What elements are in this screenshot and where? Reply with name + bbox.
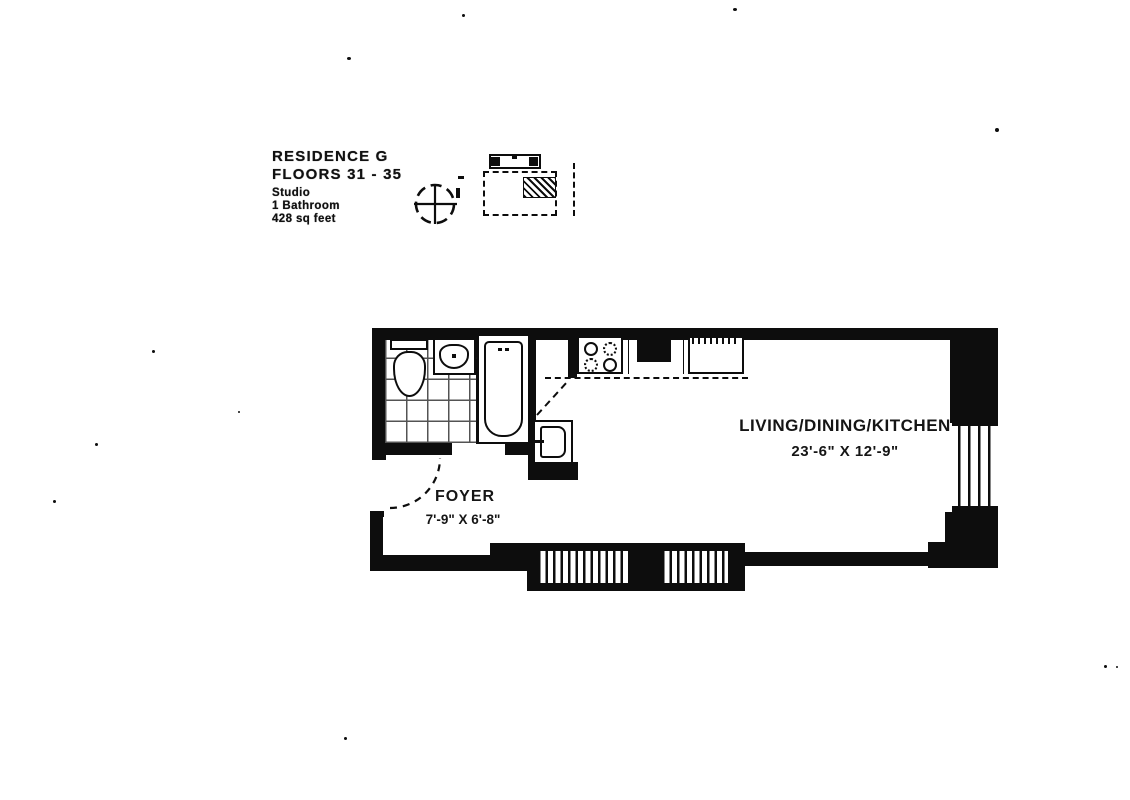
bathroom-count: 1 Bathroom — [272, 200, 340, 212]
key-plan-bar-endcap — [491, 157, 500, 166]
counter-edge-dashed — [545, 377, 748, 379]
refrigerator-coil-hatch — [692, 338, 740, 344]
foyer-label: FOYER — [400, 488, 530, 506]
scan-speck — [733, 8, 737, 11]
window-right — [958, 426, 992, 508]
scan-speck — [1104, 665, 1107, 668]
column-top-right — [950, 328, 998, 423]
tub-faucet-dot — [505, 348, 509, 351]
floorplan-sheet: RESIDENCE G FLOORS 31 - 35 Studio 1 Bath… — [0, 0, 1130, 800]
wall-left-lower — [370, 516, 383, 571]
kitchen-sink-niche — [637, 336, 671, 362]
scan-speck — [344, 737, 347, 740]
tick-mark — [456, 188, 460, 198]
scan-speck — [53, 500, 56, 503]
window-convector-right — [662, 551, 728, 583]
sink-drain-dot — [452, 354, 456, 358]
scan-speck — [995, 128, 999, 132]
wall-closet-step — [528, 462, 578, 480]
toilet-tank — [390, 339, 428, 350]
floors-range: FLOORS 31 - 35 — [272, 166, 402, 183]
scan-speck — [347, 57, 351, 60]
door-jamb-bottom — [370, 511, 384, 517]
scan-speck — [462, 14, 465, 17]
scan-speck — [1116, 666, 1118, 668]
scan-speck — [152, 350, 155, 353]
residence-name: RESIDENCE G — [272, 148, 389, 165]
wall-kitchen-left — [568, 328, 577, 378]
counter-divider — [683, 336, 684, 374]
key-plan-bar-notch — [512, 154, 517, 159]
living-room-label: LIVING/DINING/KITCHEN — [720, 416, 970, 436]
scan-speck — [238, 411, 240, 413]
kitchen-sink-faucet — [535, 440, 544, 443]
living-room-dimensions: 23'-6" X 12'-9" — [720, 443, 970, 460]
tick-mark — [458, 176, 464, 179]
wall-bottom-right — [742, 552, 952, 566]
wall-foyer-bottom — [370, 555, 530, 571]
stove — [577, 336, 623, 374]
refrigerator — [688, 336, 744, 374]
wall-foyer-step — [490, 543, 530, 557]
scan-speck — [95, 443, 98, 446]
unit-type: Studio — [272, 187, 310, 199]
unit-area: 428 sq feet — [272, 213, 336, 225]
counter-divider — [628, 336, 629, 374]
key-plan-side-dash — [573, 163, 575, 216]
closet-door-swing — [535, 379, 575, 419]
unit-location-hatch — [523, 177, 556, 198]
foyer-dimensions: 7'-9" X 6'-8" — [398, 512, 528, 527]
bathtub-inner — [484, 341, 523, 437]
tub-faucet-dot — [498, 348, 502, 351]
window-convector-left — [538, 551, 628, 583]
key-plan-bar-endcap — [529, 157, 538, 166]
wall-left-upper — [372, 328, 385, 458]
north-compass-icon — [410, 181, 462, 231]
door-jamb-top — [372, 455, 386, 460]
